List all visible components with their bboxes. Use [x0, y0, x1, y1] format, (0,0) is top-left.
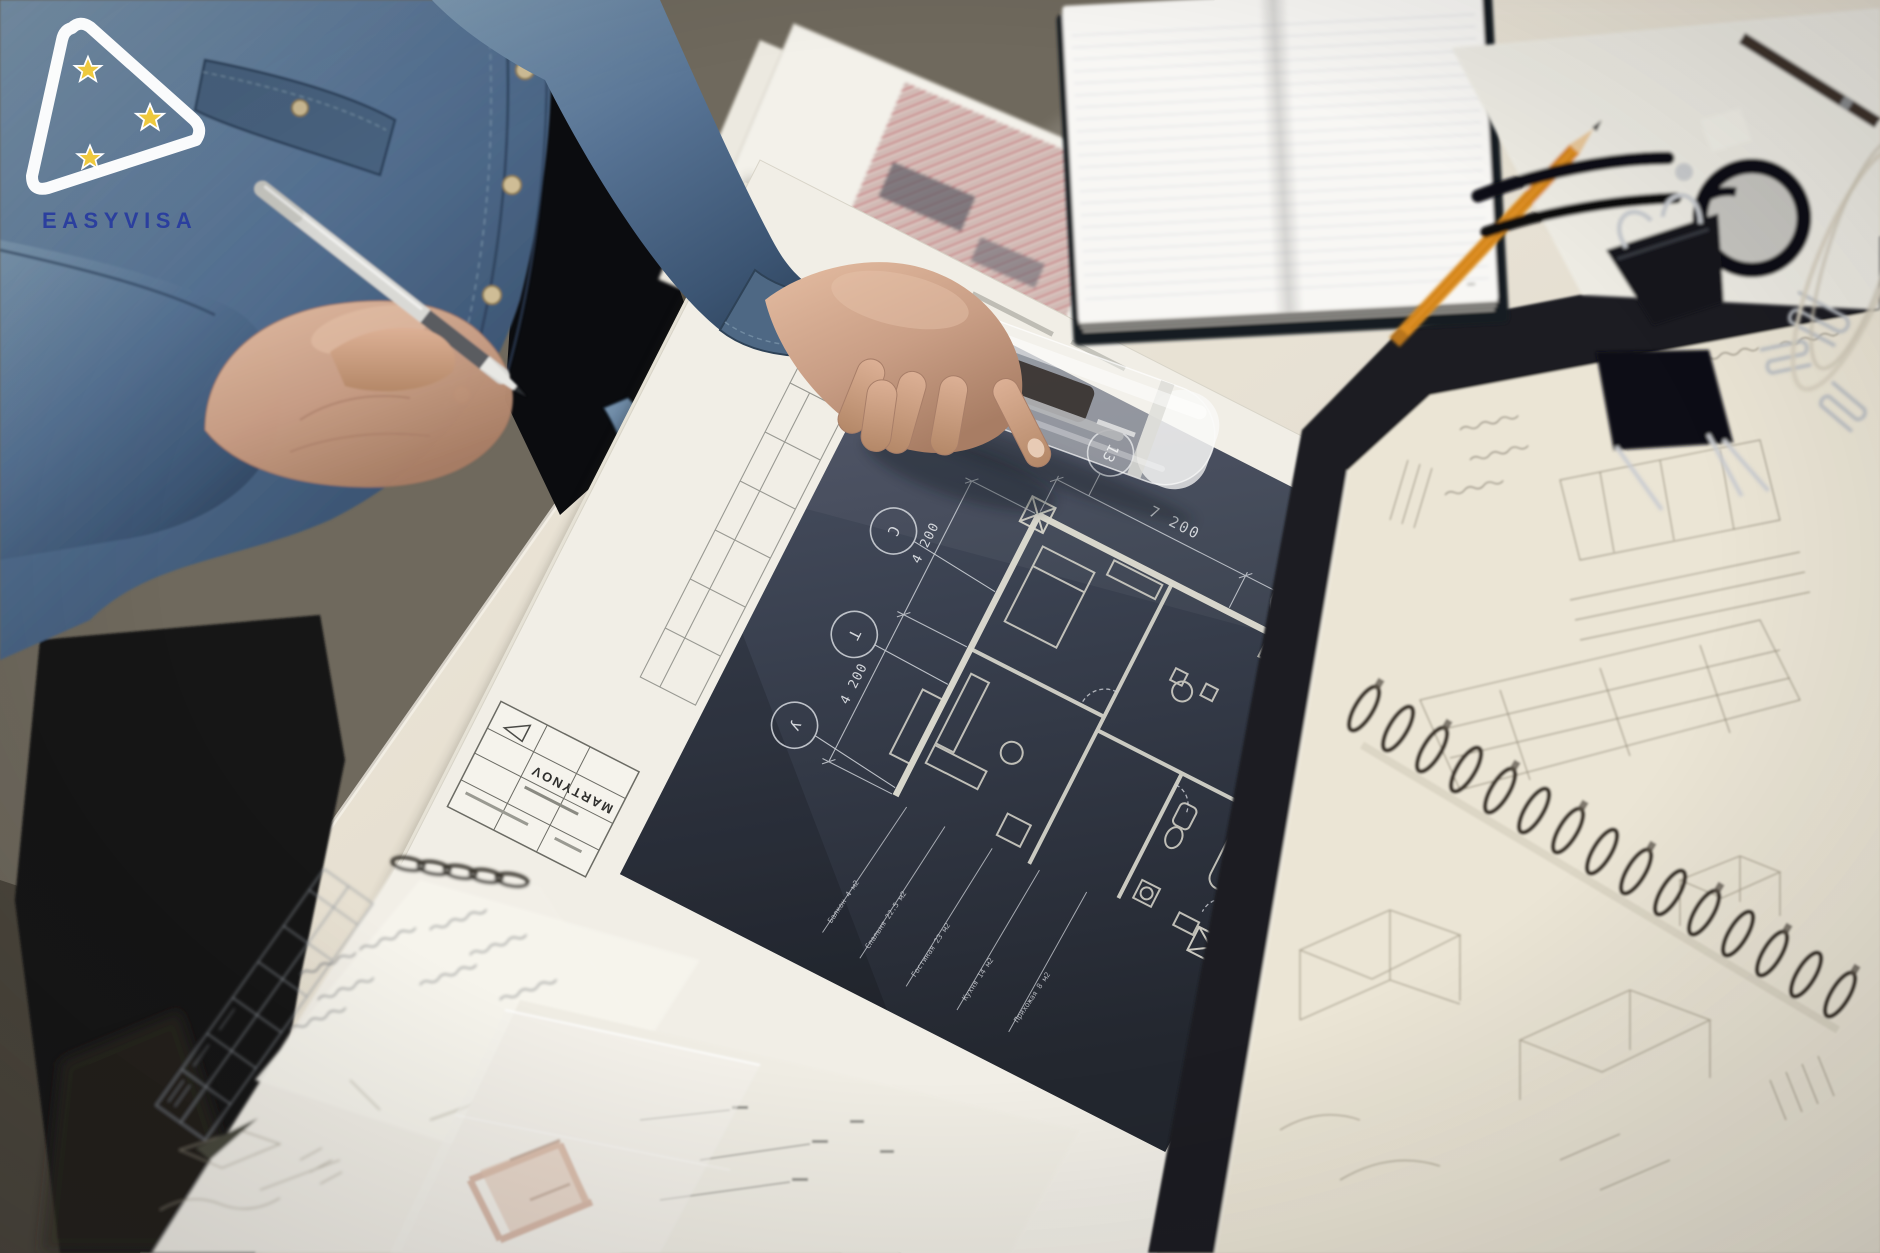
workspace-photo: MARTYNOV [0, 0, 1880, 1253]
vignette [0, 0, 1880, 1253]
logo-text: EASYVISA [42, 208, 197, 233]
